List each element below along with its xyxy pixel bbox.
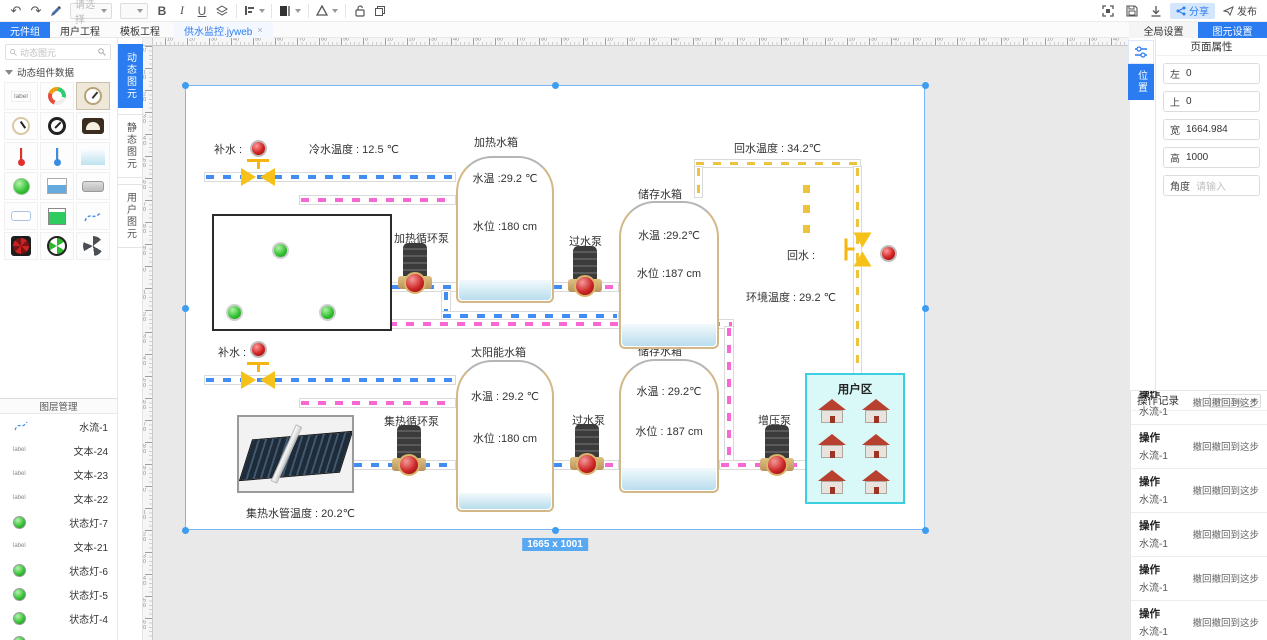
storage-tank-top-level: 水位 :187 cm	[621, 265, 717, 281]
layer-name: 状态灯-4	[69, 611, 108, 626]
publish-button[interactable]: 发布	[1219, 3, 1261, 18]
download-icon[interactable]	[1146, 2, 1166, 20]
undo-button[interactable]: ↶	[6, 2, 26, 20]
label-makeup-water-bottom[interactable]: 补水 :	[218, 344, 246, 360]
undo-to-step-link[interactable]: 撤回撤回到这步	[1192, 527, 1259, 541]
label-makeup-water-top[interactable]: 补水 :	[214, 141, 242, 157]
label-cold-water-temp[interactable]: 冷水温度 : 12.5 ℃	[309, 141, 399, 157]
ruler-label: 20	[189, 38, 195, 42]
document-tab[interactable]: 供水监控.jyweb ×	[174, 22, 273, 38]
fan-green-icon[interactable]	[40, 232, 74, 260]
operation-target: 水流-1	[1139, 535, 1168, 550]
thermometer-blue-icon[interactable]	[40, 142, 74, 170]
ruler-label: 20	[143, 92, 148, 103]
field-placeholder: 请输入	[1196, 178, 1226, 193]
ruler-label: 70	[299, 38, 305, 42]
ruler-label: 20	[143, 532, 148, 543]
clock-icon[interactable]	[4, 112, 38, 140]
gauge-color-icon[interactable]	[40, 82, 74, 110]
ruler-label: 70	[143, 422, 148, 433]
operation-row[interactable]: 操作水流-1撤回撤回到这步	[1131, 425, 1267, 469]
italic-button[interactable]: I	[172, 2, 192, 20]
vtab-user-elements[interactable]: 用户图元	[118, 184, 143, 248]
ruler-label: 90	[143, 466, 148, 477]
layer-name: 状态灯-5	[69, 587, 108, 602]
layers-panel-title: 图层管理	[0, 399, 117, 414]
house-icon	[861, 470, 891, 496]
ruler-label: 40	[453, 38, 459, 42]
status-light-icon	[13, 588, 26, 601]
tab-position[interactable]: 位置	[1128, 64, 1154, 100]
house-icon	[861, 399, 891, 425]
ruler-label: 80	[761, 38, 767, 42]
bold-button[interactable]: B	[152, 2, 172, 20]
layer-row[interactable]: label文本-24	[0, 438, 117, 462]
status-light-icon	[13, 636, 26, 640]
selection-handle[interactable]	[182, 527, 189, 534]
operation-row[interactable]: 操作水流-1撤回撤回到这步	[1131, 513, 1267, 557]
solar-tank-temp: 水温 : 29.2 ℃	[458, 388, 552, 404]
ruler-label: 20	[629, 38, 635, 42]
ruler-label: 60	[497, 38, 503, 42]
vtab-dynamic-elements[interactable]: 动态图元	[118, 44, 143, 108]
operation-action: 操作	[1139, 606, 1168, 621]
field-label: 高	[1170, 150, 1180, 165]
tab-row: 元件组 用户工程 模板工程 供水监控.jyweb × 全局设置 图元设置	[0, 22, 1267, 38]
storage-tank-top-temp: 水温 :29.2℃	[621, 227, 717, 243]
layer-row[interactable]: 水流-1	[0, 414, 117, 438]
makeup-valve-bottom[interactable]	[240, 362, 276, 389]
label-solar-tank[interactable]: 太阳能水箱	[471, 344, 526, 360]
label-storage-tank-top[interactable]: 储存水箱	[638, 186, 682, 202]
vertical-ruler: 0102030405060708090010203040506070809001…	[143, 46, 153, 640]
layer-row[interactable]: label文本-22	[0, 486, 117, 510]
ruler-label: 60	[143, 180, 148, 191]
solar-tank-level: 水位 :180 cm	[458, 430, 552, 446]
vtab-static-elements[interactable]: 静态图元	[118, 114, 143, 178]
operation-action: 操作	[1139, 562, 1168, 577]
house-icon	[817, 434, 847, 460]
ruler-label: 0	[805, 38, 808, 42]
undo-to-step-link[interactable]: 撤回撤回到这步	[1192, 439, 1259, 453]
collector-circulation-pump[interactable]	[392, 425, 426, 483]
layer-name: 状态灯-6	[69, 563, 108, 578]
house-icon	[861, 434, 891, 460]
ruler-label: 30	[211, 38, 217, 42]
gradient-panel-icon[interactable]	[76, 142, 110, 170]
fit-screen-icon[interactable]	[1098, 2, 1118, 20]
chevron-down-icon	[5, 70, 13, 75]
ruler-label: 70	[519, 38, 525, 42]
tank-water	[459, 493, 551, 509]
return-indicator[interactable]	[880, 245, 897, 262]
ruler-label: 40	[233, 38, 239, 42]
thermometer-red-icon[interactable]	[4, 142, 38, 170]
status-light-green[interactable]	[272, 242, 289, 259]
ruler-label: 40	[1113, 38, 1119, 42]
heating-circulation-pump[interactable]	[398, 243, 432, 301]
ruler-label: 10	[143, 290, 148, 301]
ruler-label: 90	[563, 38, 569, 42]
chevron-down-icon	[101, 9, 107, 13]
pass-pump-top[interactable]	[568, 246, 602, 304]
undo-to-step-link[interactable]: 撤回撤回到这步	[1192, 615, 1259, 629]
status-light-icon	[13, 564, 26, 577]
heating-tank-level: 水位 :180 cm	[458, 218, 552, 234]
operation-log-panel: 操作记录 Thu Jan 操作水流-1撤回撤回到这步操作水流-1撤回撤回到这步操…	[1130, 390, 1267, 640]
pipe-return-right-yellow[interactable]	[853, 166, 862, 374]
search-icon	[10, 49, 17, 56]
ruler-label: 0	[1025, 38, 1028, 42]
component-sidebar: 动态图元 动态组件数据 label	[0, 38, 118, 398]
heating-tank-temp: 水温 :29.2 ℃	[458, 170, 552, 186]
ruler-label: 90	[1003, 38, 1009, 42]
undo-to-step-link[interactable]: 撤回撤回到这步	[1192, 571, 1259, 585]
status-light-box[interactable]	[212, 214, 392, 331]
storage-tank-top[interactable]: 水温 :29.2℃ 水位 :187 cm	[619, 201, 719, 349]
status-light-icon	[13, 612, 26, 625]
page-size-badge: 1665 x 1001	[522, 538, 588, 551]
storage-tank-bottom-level: 水位 : 187 cm	[621, 423, 717, 439]
field-value: 0	[1186, 96, 1192, 107]
ruler-label: 40	[143, 576, 148, 587]
field-value: 1664.984	[1186, 124, 1228, 135]
pipe-hot-return-bottom[interactable]	[299, 398, 456, 408]
close-icon[interactable]: ×	[257, 25, 262, 35]
ruler-label: 10	[143, 510, 148, 521]
selection-handle[interactable]	[552, 527, 559, 534]
design-canvas[interactable]: 补水 : 冷水温度 : 12.5 ℃ 加热水箱 加热循环泵 过水泵 储存水箱 回…	[153, 46, 1130, 640]
layer-row[interactable]: 状态灯-5	[0, 582, 117, 606]
field-label: 左	[1170, 66, 1180, 81]
ruler-label: 30	[143, 554, 148, 565]
scada-editor-window: ↶ ↷ 请选择 B I U	[0, 0, 1267, 640]
layer-name: 文本-24	[74, 443, 108, 458]
tank-water	[622, 324, 716, 346]
ruler-label: 80	[143, 224, 148, 235]
indicator-green-icon[interactable]	[4, 172, 38, 200]
label-return-water-temp[interactable]: 回水温度 : 34.2℃	[734, 140, 821, 156]
ruler-label: 70	[739, 38, 745, 42]
operation-row[interactable]: 操作水流-1撤回撤回到这步	[1131, 469, 1267, 513]
tank-water	[622, 468, 716, 490]
chevron-down-icon	[295, 9, 301, 13]
ruler-label: 30	[431, 38, 437, 42]
layer-row[interactable]: label文本-23	[0, 462, 117, 486]
share-icon	[1176, 6, 1186, 16]
operation-target: 水流-1	[1139, 623, 1168, 638]
ruler-label: 70	[959, 38, 965, 42]
component-search-input[interactable]: 动态图元	[5, 44, 111, 60]
ruler-label: 50	[143, 378, 148, 389]
tank-green-icon[interactable]	[40, 202, 74, 230]
label-icon: label	[13, 543, 26, 549]
palette-category-tabs: 动态图元 静态图元 用户图元	[118, 38, 143, 640]
property-field-上[interactable]: 上0	[1163, 91, 1260, 112]
ruler-label: 10	[387, 38, 393, 42]
tank-water	[459, 280, 551, 300]
ruler-label: 30	[143, 114, 148, 125]
ruler-label: 40	[143, 356, 148, 367]
ruler-label: 50	[475, 38, 481, 42]
layer-row[interactable]: 状态灯-7	[0, 510, 117, 534]
selection-handle[interactable]	[922, 305, 929, 312]
speedometer-icon[interactable]	[76, 112, 110, 140]
ruler-label: 70	[143, 202, 148, 213]
ruler-label: 40	[143, 136, 148, 147]
operation-target: 水流-1	[1139, 447, 1168, 462]
ruler-label: 50	[143, 598, 148, 609]
label-icon[interactable]: label	[4, 82, 38, 110]
propeller-icon[interactable]	[76, 232, 110, 260]
ruler-label: 10	[1047, 38, 1053, 42]
chevron-down-icon	[259, 9, 265, 13]
format-painter-icon[interactable]	[46, 2, 66, 20]
property-field-角度[interactable]: 角度请输入	[1163, 175, 1260, 196]
properties-fields: 左0上0宽1664.984高1000角度请输入	[1156, 63, 1267, 196]
undo-to-step-link[interactable]: 撤回撤回到这步	[1192, 395, 1259, 409]
component-palette: label	[4, 82, 116, 260]
duplicate-icon[interactable]	[370, 2, 390, 20]
ruler-label: 40	[893, 38, 899, 42]
share-button[interactable]: 分享	[1170, 3, 1215, 19]
layer-row[interactable]	[0, 630, 117, 640]
ruler-label: 60	[143, 620, 148, 631]
operation-row[interactable]: 操作水流-1撤回撤回到这步	[1131, 557, 1267, 601]
search-icon	[98, 48, 106, 56]
ruler-label: 10	[143, 70, 148, 81]
ruler-label: 30	[651, 38, 657, 42]
pipe-vertical-pink[interactable]	[724, 326, 734, 466]
operation-action: 操作	[1139, 474, 1168, 489]
operation-row[interactable]: 操作水流-1撤回撤回到这步	[1131, 601, 1267, 640]
ruler-label: 90	[343, 38, 349, 42]
ruler-label: 50	[255, 38, 261, 42]
return-valve[interactable]	[845, 232, 872, 268]
fan-red-icon[interactable]	[4, 232, 38, 260]
status-light-green[interactable]	[226, 304, 243, 321]
ruler-label: 80	[541, 38, 547, 42]
font-select[interactable]: 请选择	[70, 3, 112, 19]
solar-tank[interactable]: 水温 : 29.2 ℃ 水位 :180 cm	[456, 360, 554, 512]
redo-button[interactable]: ↷	[26, 2, 46, 20]
ruler-label: 0	[585, 38, 588, 42]
ruler-label: 10	[827, 38, 833, 42]
ruler-label: 30	[1091, 38, 1097, 42]
field-label: 宽	[1170, 122, 1180, 137]
label-return-water[interactable]: 回水 :	[787, 247, 815, 263]
gradient-button[interactable]	[313, 2, 341, 20]
gauge-dark-icon[interactable]	[40, 112, 74, 140]
ruler-label: 30	[143, 334, 148, 345]
label-icon: label	[13, 495, 26, 501]
fill-color-button[interactable]	[276, 2, 304, 20]
selection-handle[interactable]	[182, 82, 189, 89]
ruler-label: 60	[717, 38, 723, 42]
rect-outline-icon[interactable]	[4, 202, 38, 230]
pipe-return-left-yellow[interactable]	[694, 166, 703, 198]
field-label: 上	[1170, 94, 1180, 109]
ruler-label: 0	[143, 48, 148, 53]
ruler-label: 80	[143, 444, 148, 455]
ruler-label: 60	[277, 38, 283, 42]
user-zone-box[interactable]: 用户区	[805, 373, 905, 504]
toolbar-divider	[345, 4, 346, 18]
selection-handle[interactable]	[922, 82, 929, 89]
pipe-hot-return-top[interactable]	[299, 195, 456, 205]
ruler-label: 50	[915, 38, 921, 42]
main-toolbar: ↶ ↷ 请选择 B I U	[0, 0, 1267, 22]
tab-components[interactable]: 元件组	[0, 22, 50, 38]
status-light-icon	[13, 516, 26, 529]
design-page[interactable]: 补水 : 冷水温度 : 12.5 ℃ 加热水箱 加热循环泵 过水泵 储存水箱 回…	[185, 85, 925, 530]
operation-log-list: 操作水流-1撤回撤回到这步操作水流-1撤回撤回到这步操作水流-1撤回撤回到这步操…	[1131, 390, 1267, 640]
tab-global-settings[interactable]: 全局设置	[1129, 22, 1198, 38]
font-size-select[interactable]	[120, 3, 148, 19]
sliders-icon	[1128, 40, 1154, 64]
house-icon	[817, 470, 847, 496]
water-tank-blue-icon[interactable]	[40, 172, 74, 200]
operation-target: 水流-1	[1139, 491, 1168, 506]
solar-collector[interactable]	[237, 415, 354, 493]
layer-row[interactable]: label文本-21	[0, 534, 117, 558]
ruler-label: 0	[365, 38, 368, 42]
label-ambient-temp[interactable]: 环境温度 : 29.2 ℃	[746, 289, 836, 305]
makeup-valve-top[interactable]	[240, 159, 276, 186]
section-dynamic-components[interactable]: 动态组件数据	[5, 65, 113, 79]
send-icon	[1223, 6, 1234, 16]
layers-list: 水流-1label文本-24label文本-23label文本-22状态灯-7l…	[0, 414, 117, 640]
ruler-label: 40	[673, 38, 679, 42]
status-light-green[interactable]	[319, 304, 336, 321]
toolbar-divider	[271, 4, 272, 18]
ruler-label: 60	[937, 38, 943, 42]
undo-to-step-link[interactable]: 撤回撤回到这步	[1192, 483, 1259, 497]
ruler-label: 50	[695, 38, 701, 42]
booster-pump[interactable]	[760, 425, 794, 483]
layers-panel: 图层管理 水流-1label文本-24label文本-23label文本-22状…	[0, 398, 118, 640]
operation-action: 操作	[1139, 430, 1168, 445]
makeup-indicator-bottom[interactable]	[250, 341, 267, 358]
storage-tank-bottom-temp: 水温 : 29.2℃	[621, 383, 717, 399]
layers-icon[interactable]	[212, 2, 232, 20]
selection-handle[interactable]	[182, 305, 189, 312]
layer-name: 文本-23	[74, 467, 108, 482]
ruler-label: 90	[783, 38, 789, 42]
pass-pump-bottom[interactable]	[570, 424, 604, 482]
property-field-宽[interactable]: 宽1664.984	[1163, 119, 1260, 140]
ruler-label: 80	[981, 38, 987, 42]
user-zone-title: 用户区	[807, 381, 903, 397]
underline-button[interactable]: U	[192, 2, 212, 20]
property-field-高[interactable]: 高1000	[1163, 147, 1260, 168]
storage-tank-bottom[interactable]: 水温 : 29.2℃ 水位 : 187 cm	[619, 359, 719, 493]
chevron-down-icon	[137, 9, 143, 13]
ruler-label: 90	[143, 246, 148, 257]
ruler-label: 10	[607, 38, 613, 42]
rect-gray-icon[interactable]	[76, 172, 110, 200]
house-icon	[817, 399, 847, 425]
layer-name: 状态灯-7	[69, 515, 108, 530]
ruler-label: 80	[321, 38, 327, 42]
ruler-label: 60	[143, 400, 148, 411]
layer-name: 文本-22	[74, 491, 108, 506]
pipe-return-branch-yellow[interactable]	[802, 184, 811, 242]
layer-name: 文本-21	[74, 539, 108, 554]
makeup-indicator-top[interactable]	[250, 140, 267, 157]
toolbar-divider	[308, 4, 309, 18]
align-button[interactable]	[241, 2, 267, 20]
properties-category-tab: 位置	[1128, 40, 1154, 100]
tab-template-projects[interactable]: 模板工程	[110, 22, 170, 38]
heating-tank[interactable]: 水温 :29.2 ℃ 水位 :180 cm	[456, 156, 554, 303]
layer-name: 水流-1	[79, 419, 108, 434]
label-icon: label	[13, 471, 26, 477]
field-value: 0	[1186, 68, 1192, 79]
property-field-左[interactable]: 左0	[1163, 63, 1260, 84]
unlock-icon[interactable]	[350, 2, 370, 20]
save-icon[interactable]	[1122, 2, 1142, 20]
operation-target: 水流-1	[1139, 579, 1168, 594]
layer-row[interactable]: 状态灯-4	[0, 606, 117, 630]
page-properties-panel: 页面属性 左0上0宽1664.984高1000角度请输入	[1155, 38, 1267, 390]
operation-row[interactable]: 操作水流-1撤回撤回到这步	[1131, 390, 1267, 425]
layer-row[interactable]: 状态灯-6	[0, 558, 117, 582]
dial-icon[interactable]	[76, 82, 110, 110]
properties-title: 页面属性	[1156, 38, 1267, 56]
chevron-down-icon	[332, 9, 338, 13]
field-label: 角度	[1170, 178, 1190, 193]
label-collector-pipe-temp[interactable]: 集热水管温度 : 20.2℃	[246, 505, 355, 521]
operation-action: 操作	[1139, 518, 1168, 533]
ruler-label: 20	[143, 312, 148, 323]
ruler-label: 20	[409, 38, 415, 42]
selection-handle[interactable]	[552, 82, 559, 89]
toolbar-divider	[236, 4, 237, 18]
polyline-icon[interactable]	[76, 202, 110, 230]
ruler-label: 0	[143, 488, 148, 493]
horizontal-ruler: 0102030405060708090010203040506070809001…	[143, 38, 1130, 46]
label-heating-tank[interactable]: 加热水箱	[474, 134, 518, 150]
polyline-icon	[13, 419, 29, 433]
tab-element-settings[interactable]: 图元设置	[1198, 22, 1267, 38]
operation-action: 操作	[1139, 390, 1168, 401]
ruler-label: 10	[167, 38, 173, 42]
selection-handle[interactable]	[922, 527, 929, 534]
field-value: 1000	[1186, 152, 1208, 163]
ruler-label: 0	[143, 268, 148, 273]
ruler-label: 20	[1069, 38, 1075, 42]
ruler-label: 50	[143, 158, 148, 169]
pipe-return-top-yellow[interactable]	[694, 159, 861, 168]
label-icon: label	[13, 447, 26, 453]
ruler-corner	[143, 38, 153, 46]
ruler-label: 30	[871, 38, 877, 42]
operation-target: 水流-1	[1139, 403, 1168, 418]
ruler-label: 20	[849, 38, 855, 42]
